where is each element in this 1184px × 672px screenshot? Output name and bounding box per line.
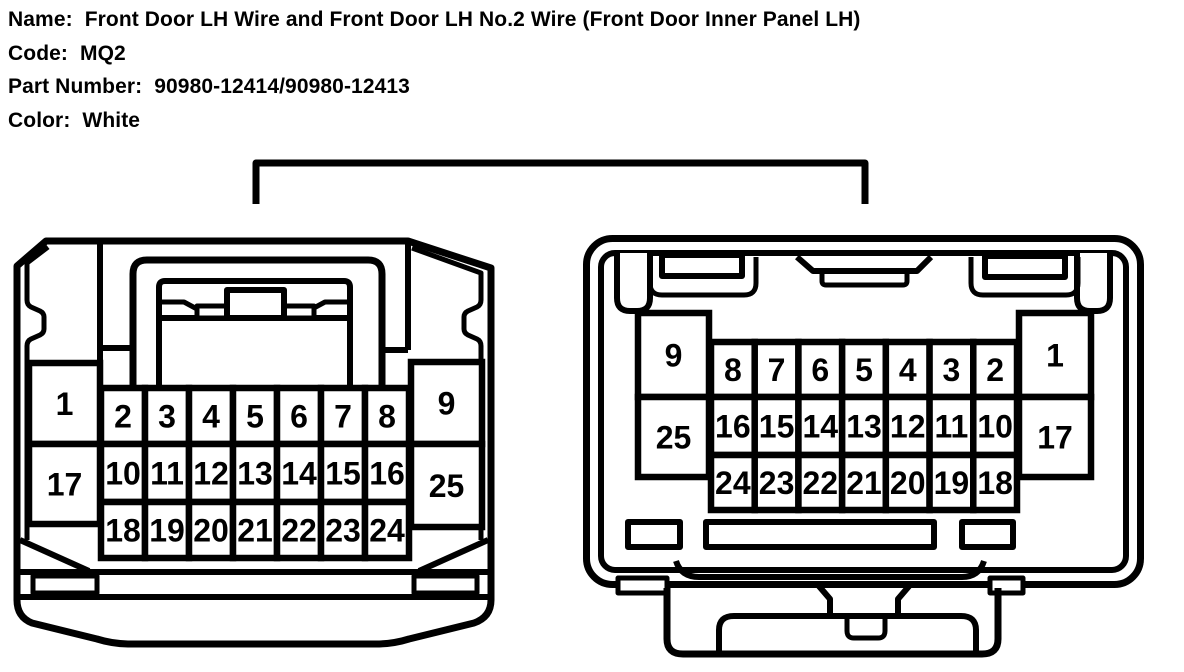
pin-number: 17 [47, 467, 83, 503]
pin-number: 1 [1046, 338, 1064, 374]
pin-number: 24 [715, 465, 751, 501]
pin-number: 4 [899, 352, 917, 388]
pin-number: 6 [811, 352, 829, 388]
pin-number: 12 [193, 456, 229, 492]
pin-number: 7 [768, 352, 786, 388]
mount-bracket-right-shelf [898, 616, 976, 654]
pin-number: 19 [934, 465, 970, 501]
top-right-slot [985, 256, 1065, 277]
pin-number: 22 [802, 465, 838, 501]
top-right-channel [1077, 253, 1110, 311]
mount-bracket-tab [847, 616, 885, 638]
pin-number: 23 [759, 465, 795, 501]
pin-number: 2 [986, 352, 1004, 388]
latch-right-tab [284, 306, 314, 318]
pin-number: 25 [429, 468, 465, 504]
pin-number: 15 [325, 456, 361, 492]
pin-number: 13 [237, 456, 273, 492]
mount-bracket-center-block [818, 585, 910, 616]
pin-number: 8 [724, 352, 742, 388]
pin-number: 14 [802, 409, 838, 445]
lower-center-bar [706, 522, 934, 547]
latch-center-lug [227, 290, 284, 318]
top-left-channel [617, 253, 650, 311]
latch-left-tab [197, 306, 227, 318]
pin-number: 23 [325, 513, 361, 549]
pin-number: 18 [105, 513, 141, 549]
pin-number: 11 [935, 409, 969, 445]
pin-number: 4 [202, 399, 220, 435]
pin-number: 3 [158, 399, 176, 435]
pin-number: 15 [759, 409, 795, 445]
top-left-slot [662, 255, 742, 276]
pin-number: 9 [665, 338, 683, 374]
pin-number: 14 [281, 456, 317, 492]
wiring-diagram-page: Name:Front Door LH Wire and Front Door L… [0, 0, 1184, 672]
pin-number: 18 [977, 465, 1013, 501]
connector-diagram: 1172345678101112131415161819202122232492… [0, 0, 1184, 672]
pin-number: 20 [890, 465, 926, 501]
pin-number: 8 [378, 399, 396, 435]
pin-number: 13 [846, 409, 882, 445]
pin-number: 21 [237, 513, 273, 549]
pin-number: 2 [114, 399, 132, 435]
pin-number: 6 [290, 399, 308, 435]
lower-left-slot [628, 522, 680, 547]
pin-number: 16 [715, 409, 751, 445]
pin-number: 24 [369, 513, 405, 549]
pin-number: 17 [1037, 420, 1073, 456]
pin-number: 5 [246, 399, 264, 435]
pin-number: 25 [656, 420, 692, 456]
pin-number: 10 [105, 456, 141, 492]
pin-number: 3 [943, 352, 961, 388]
pin-number: 19 [149, 513, 185, 549]
pin-number: 22 [281, 513, 317, 549]
pin-number: 5 [855, 352, 873, 388]
pin-number: 20 [193, 513, 229, 549]
mount-bracket-left-shelf [719, 616, 830, 654]
pin-number: 11 [150, 456, 184, 492]
bottom-band-left-slot [33, 576, 97, 593]
pin-number: 9 [438, 386, 456, 422]
bottom-band-right-slot [414, 576, 477, 593]
pin-number: 12 [890, 409, 926, 445]
pin-number: 1 [56, 386, 74, 422]
lower-right-slot [962, 522, 1013, 547]
pin-number: 21 [846, 465, 882, 501]
pin-number: 16 [369, 456, 405, 492]
mating-bracket [256, 163, 865, 204]
pin-number: 10 [977, 409, 1013, 445]
bottom-left-foot [618, 578, 667, 593]
pin-number: 7 [334, 399, 352, 435]
